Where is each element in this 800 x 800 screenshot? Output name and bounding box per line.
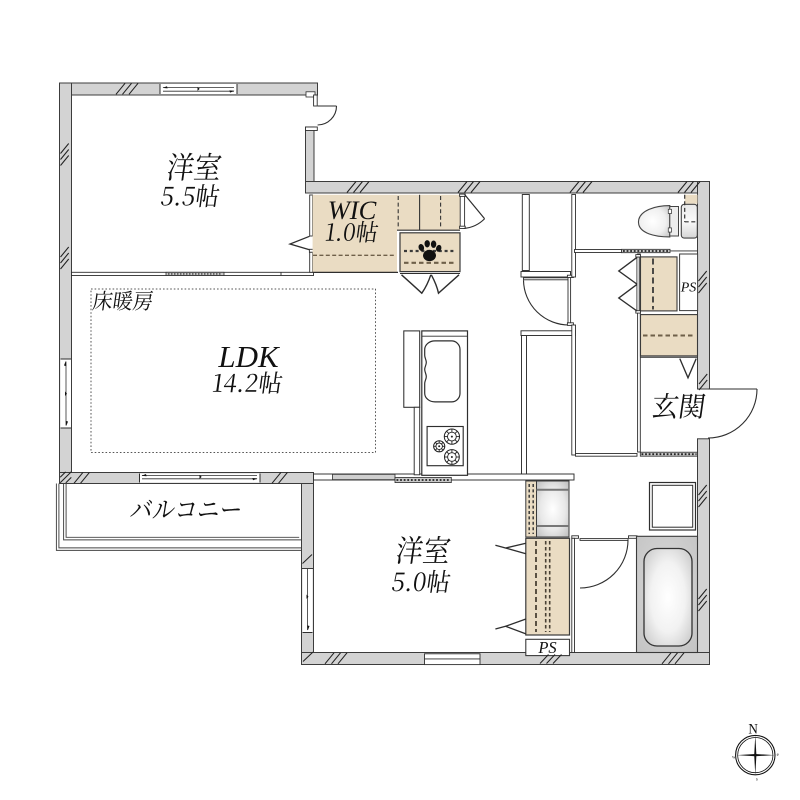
svg-text:N: N	[748, 722, 758, 738]
svg-text:WIC: WIC	[328, 195, 377, 225]
svg-text:LDK: LDK	[217, 339, 281, 374]
svg-text:PS: PS	[680, 281, 697, 296]
svg-text:s: s	[756, 778, 758, 783]
svg-text:PS: PS	[537, 638, 556, 657]
svg-text:w: w	[732, 756, 736, 761]
